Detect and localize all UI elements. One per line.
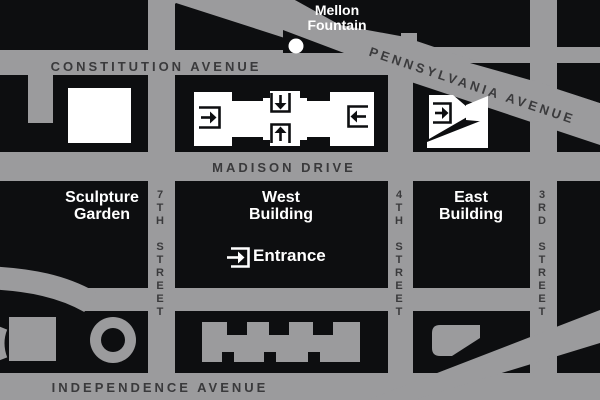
nmai-building bbox=[432, 325, 480, 356]
third-street-label: 3RD STREET bbox=[536, 189, 547, 319]
east-building-label: East Building bbox=[409, 190, 533, 223]
west-building-line1: West bbox=[219, 190, 343, 207]
constitution-avenue-label: CONSTITUTION AVENUE bbox=[0, 59, 312, 74]
east-building-line2: Building bbox=[409, 207, 533, 224]
ninth-street-stub-road bbox=[28, 75, 53, 123]
nga-area-map: CONSTITUTION AVENUE PENNSYLVANIA AVENUE … bbox=[0, 0, 600, 400]
entrance-marker-icon bbox=[227, 249, 249, 267]
mellon-fountain-line1: Mellon bbox=[299, 3, 375, 18]
west-building-line2: Building bbox=[219, 207, 343, 224]
fourth-street-label: 4TH STREET bbox=[393, 189, 404, 319]
mellon-fountain-label: Mellon Fountain bbox=[299, 3, 375, 33]
building-footprint-rect bbox=[9, 317, 56, 361]
independence-avenue-label: INDEPENDENCE AVENUE bbox=[0, 380, 320, 395]
east-building-line1: East bbox=[409, 190, 533, 207]
entrance-label: Entrance bbox=[253, 248, 326, 265]
block-mellon-east bbox=[557, 0, 600, 47]
mellon-fountain-line2: Fountain bbox=[299, 18, 375, 33]
west-building-label: West Building bbox=[219, 190, 343, 223]
sculpture-garden-pavilion-building bbox=[68, 88, 131, 143]
corner-road-fragment bbox=[0, 328, 3, 359]
hirshhorn-donut-hole bbox=[101, 328, 125, 352]
curved-road bbox=[0, 278, 90, 302]
madison-drive-label: MADISON DRIVE bbox=[134, 160, 434, 175]
sculpture-garden-label: Sculpture Garden bbox=[40, 190, 164, 223]
sculpture-garden-line1: Sculpture bbox=[40, 190, 164, 207]
sculpture-garden-line2: Garden bbox=[40, 207, 164, 224]
fountain-dot-icon bbox=[289, 39, 304, 54]
white-buildings bbox=[68, 88, 488, 148]
air-and-space-building bbox=[202, 322, 360, 362]
west-building-footprint bbox=[194, 91, 374, 146]
